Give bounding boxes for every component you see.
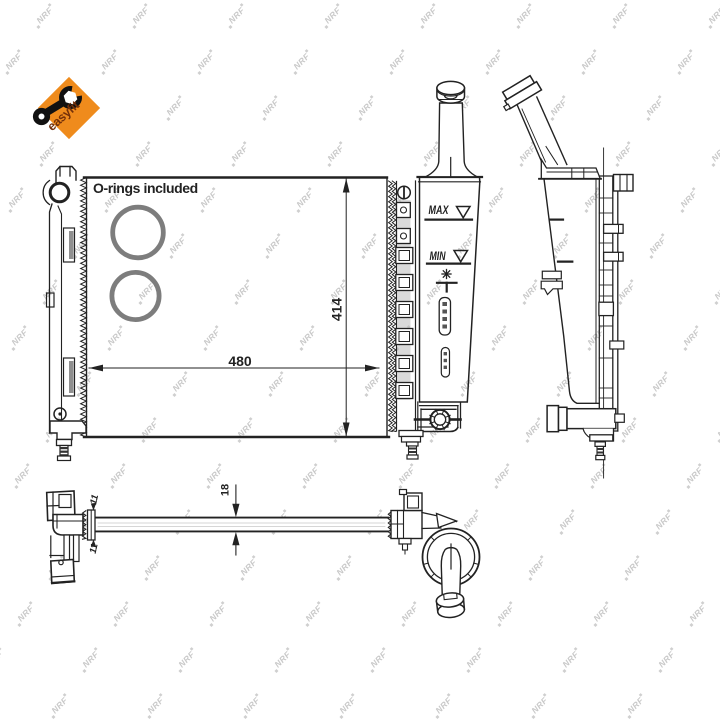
- svg-text:MIN: MIN: [430, 249, 446, 263]
- svg-text:O-rings included: O-rings included: [93, 180, 198, 196]
- svg-text:414: 414: [329, 298, 345, 322]
- svg-text:18: 18: [220, 484, 232, 496]
- svg-text:MAX: MAX: [429, 203, 450, 217]
- svg-text:480: 480: [228, 353, 252, 369]
